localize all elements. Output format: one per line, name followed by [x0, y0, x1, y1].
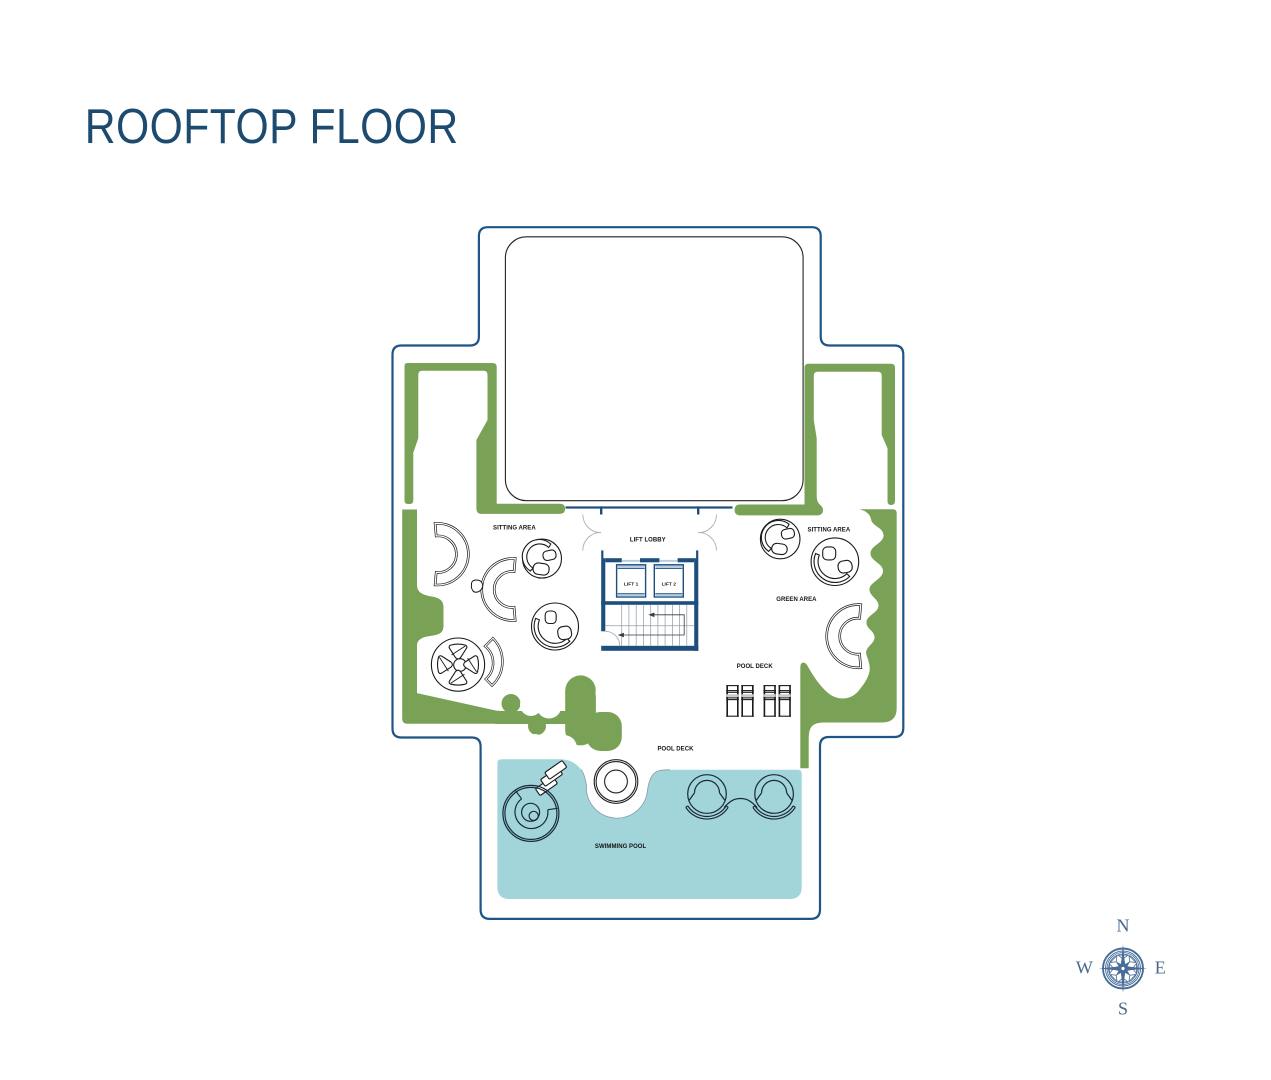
svg-text:LIFT 2: LIFT 2: [662, 581, 677, 587]
svg-text:ROOFTOP FLOOR: ROOFTOP FLOOR: [85, 98, 459, 154]
svg-text:E: E: [1155, 958, 1166, 978]
svg-text:LIFT 1: LIFT 1: [624, 581, 639, 587]
svg-text:SITTING AREA: SITTING AREA: [493, 526, 536, 532]
svg-text:SWIMMING POOL: SWIMMING POOL: [595, 844, 647, 850]
svg-text:SITTING AREA: SITTING AREA: [808, 527, 851, 533]
svg-text:W: W: [1076, 958, 1093, 978]
svg-text:N: N: [1117, 916, 1130, 936]
svg-text:GREEN AREA: GREEN AREA: [776, 597, 817, 603]
svg-text:LIFT LOBBY: LIFT LOBBY: [630, 538, 666, 544]
svg-text:POOL DECK: POOL DECK: [657, 747, 694, 753]
svg-text:S: S: [1118, 999, 1128, 1019]
svg-text:POOL DECK: POOL DECK: [737, 664, 774, 670]
